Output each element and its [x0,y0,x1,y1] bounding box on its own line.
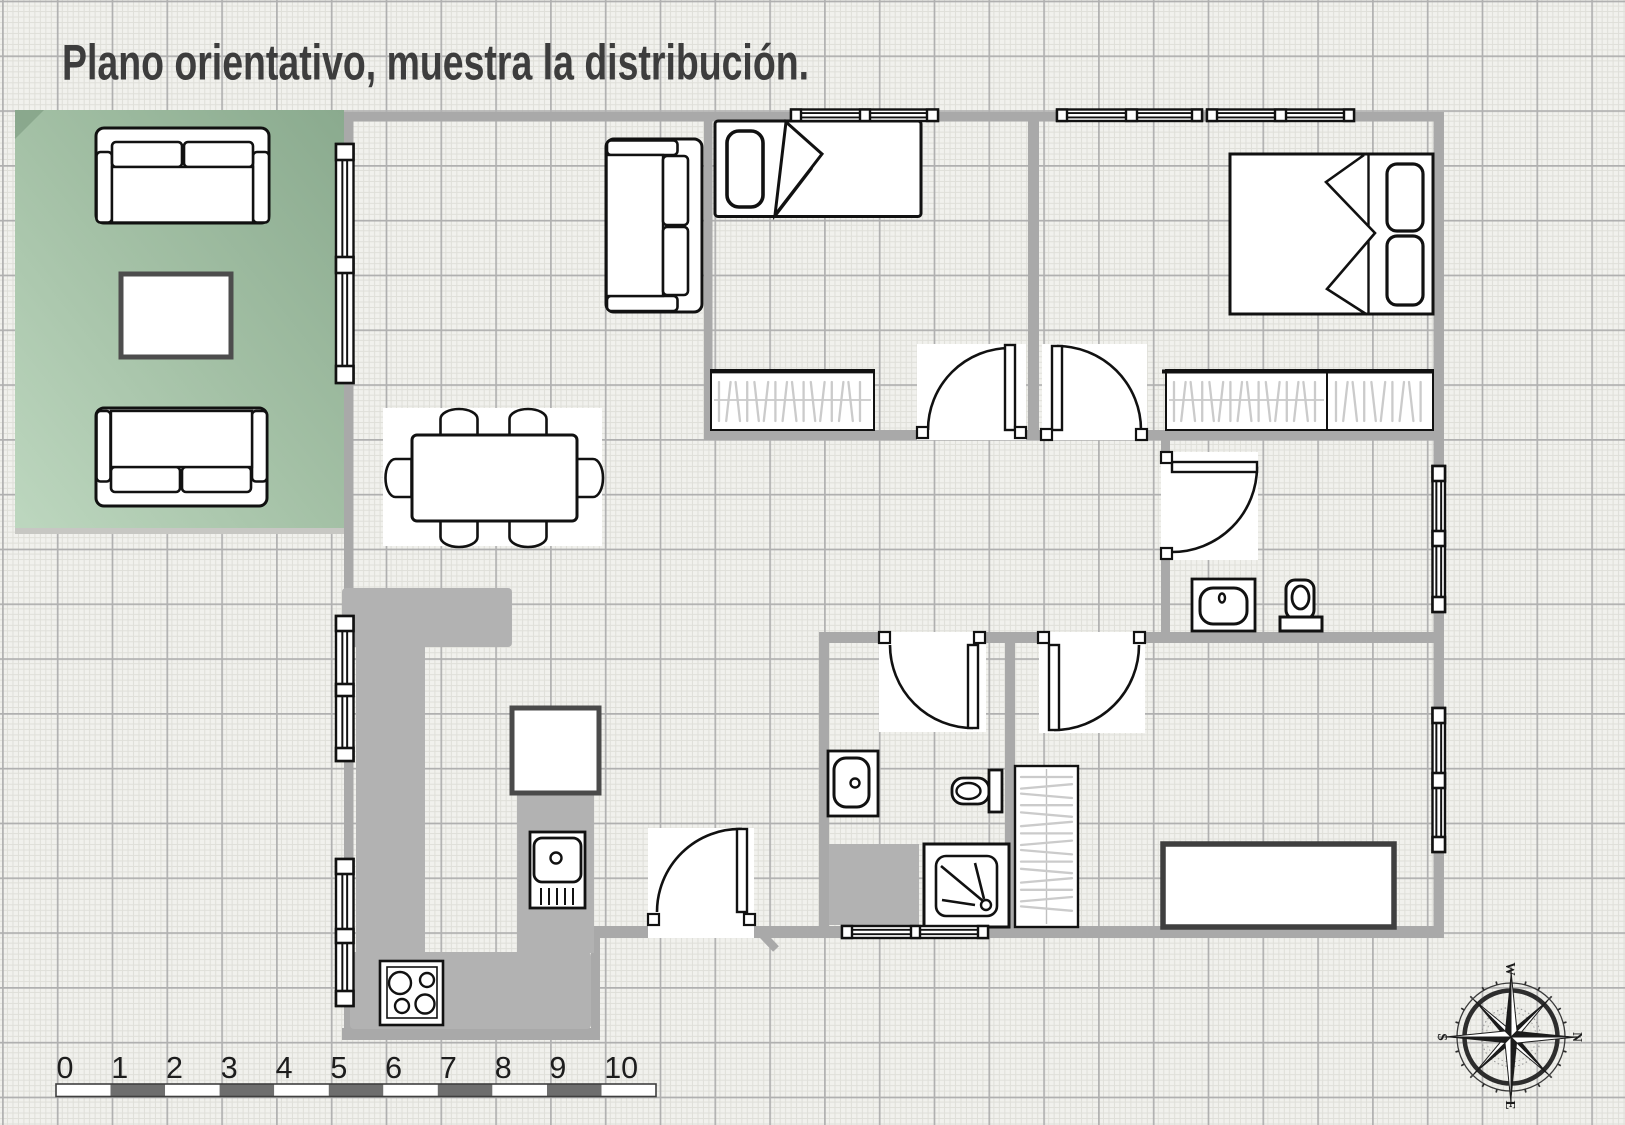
svg-text:5: 5 [330,1051,347,1085]
svg-text:S: S [1435,1033,1450,1041]
svg-text:7: 7 [440,1051,457,1085]
svg-text:8: 8 [495,1051,512,1085]
svg-text:2: 2 [166,1051,183,1085]
svg-text:9: 9 [549,1051,566,1085]
svg-text:1: 1 [111,1051,128,1085]
svg-text:10: 10 [604,1051,638,1085]
svg-text:6: 6 [385,1051,402,1085]
svg-text:0: 0 [57,1051,74,1085]
svg-text:N: N [1570,1032,1585,1042]
svg-text:Plano orientativo, muestra la: Plano orientativo, muestra la distribuci… [62,35,809,91]
svg-text:E: E [1503,1100,1518,1109]
svg-text:4: 4 [276,1051,293,1085]
svg-text:W: W [1503,962,1518,976]
svg-text:3: 3 [221,1051,238,1085]
